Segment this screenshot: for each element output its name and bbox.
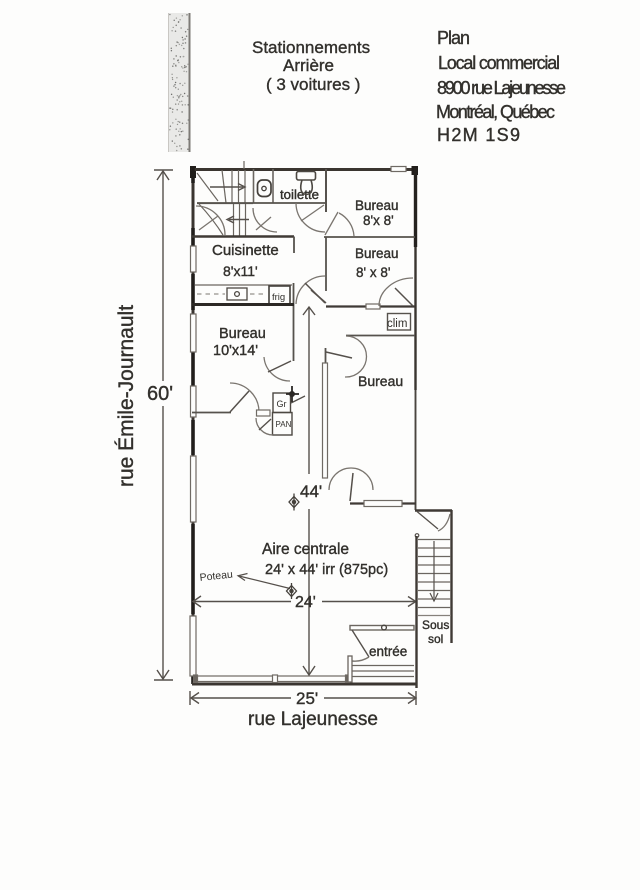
svg-text:toilette: toilette [280,188,319,202]
svg-text:Stationnements: Stationnements [252,38,370,57]
svg-text:8'x 8': 8'x 8' [363,213,394,228]
svg-text:Montréal, Québec: Montréal, Québec [436,102,555,122]
svg-text:Plan: Plan [437,28,470,48]
svg-text:frig: frig [272,292,285,303]
svg-text:Arrière: Arrière [283,56,334,75]
svg-text:Cuisinette: Cuisinette [212,242,279,259]
svg-text:Aire centrale: Aire centrale [262,541,349,558]
svg-text:Bureau: Bureau [358,373,403,389]
svg-text:rue Lajeunesse: rue Lajeunesse [248,709,378,730]
svg-text:25': 25' [296,689,318,708]
svg-text:60': 60' [147,383,173,405]
svg-text:H2M 1S9: H2M 1S9 [437,125,520,145]
svg-text:Bureau: Bureau [219,326,266,342]
svg-text:( 3 voitures ): ( 3 voitures ) [266,75,360,94]
svg-text:Bureau: Bureau [355,246,399,261]
svg-text:sol: sol [428,632,443,646]
svg-text:44': 44' [300,482,322,501]
svg-text:rue Émile-Journault: rue Émile-Journault [115,305,138,487]
svg-text:Gr: Gr [277,399,287,409]
svg-text:8'x11': 8'x11' [223,263,258,279]
svg-text:Local commercial: Local commercial [438,53,560,73]
svg-text:10'x14': 10'x14' [213,343,258,359]
svg-text:24' x 44' irr (875pc): 24' x 44' irr (875pc) [265,562,388,578]
svg-text:entrée: entrée [369,644,407,659]
svg-text:Sous: Sous [422,618,449,632]
svg-text:8900 rue Lajeunesse: 8900 rue Lajeunesse [437,78,566,98]
svg-text:PAN: PAN [276,420,292,429]
svg-text:Bureau: Bureau [355,198,399,213]
svg-text:8' x 8': 8' x 8' [356,265,390,280]
svg-text:24': 24' [295,594,316,611]
svg-text:clim: clim [387,318,407,330]
